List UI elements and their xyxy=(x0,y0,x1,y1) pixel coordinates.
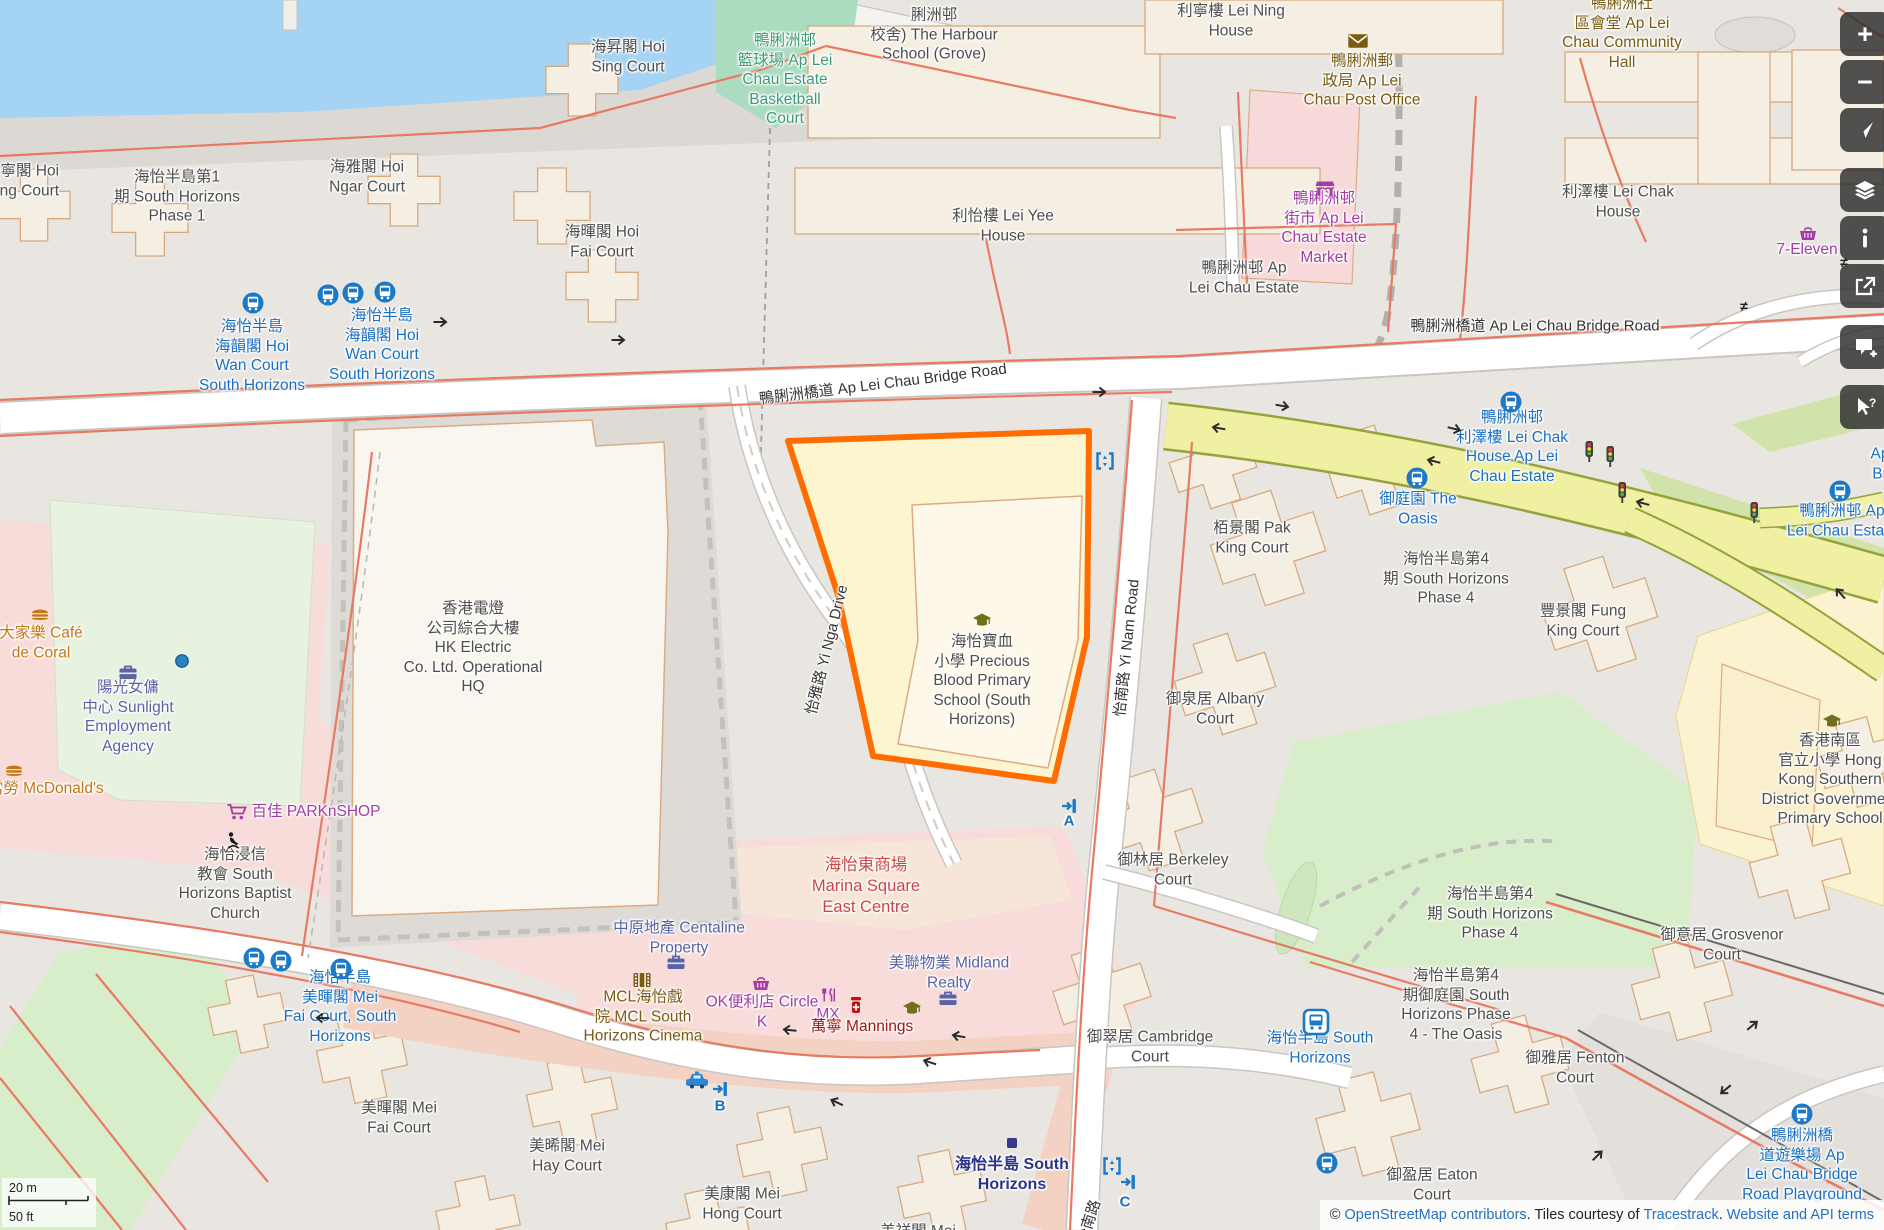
traffic-signal-icon xyxy=(1749,501,1760,525)
one-way-arrow-icon xyxy=(949,1029,968,1044)
attribution-link[interactable]: Tracestrack xyxy=(1644,1207,1719,1223)
convenience-store-icon xyxy=(1798,225,1818,242)
attribution-link[interactable]: Website and API terms xyxy=(1727,1207,1874,1223)
attribution-text: © xyxy=(1330,1207,1345,1223)
scale-metric: 20 m xyxy=(6,1181,92,1195)
zoom-out-button[interactable]: − xyxy=(1840,60,1884,104)
traffic-signal-icon xyxy=(1584,440,1595,464)
one-way-arrow-icon xyxy=(1274,399,1293,414)
one-way-arrow-icon xyxy=(1715,1080,1736,1100)
one-way-arrow-icon xyxy=(780,1023,798,1037)
map-markers-layer: ≠≠ xyxy=(0,0,1884,1230)
attribution-text: . Tiles courtesy of xyxy=(1527,1207,1644,1223)
one-way-arrow-icon xyxy=(1445,421,1464,437)
bus-stop-icon xyxy=(330,958,352,980)
school-icon xyxy=(902,1000,922,1016)
fast-food-icon xyxy=(31,607,50,621)
convenience-store-icon xyxy=(751,975,771,992)
bus-stop-icon xyxy=(1791,1103,1813,1125)
bus-stop-icon xyxy=(270,950,292,972)
one-way-arrow-icon xyxy=(1743,1015,1764,1035)
subway-entrance-icon xyxy=(1060,798,1078,814)
poi-dot xyxy=(175,654,190,669)
post-office-icon xyxy=(1348,34,1369,49)
traffic-signal-icon xyxy=(1617,481,1628,505)
bus-stop-icon xyxy=(243,947,265,969)
restaurant-icon xyxy=(821,987,838,1003)
one-way-arrow-icon xyxy=(433,316,450,328)
supermarket-icon xyxy=(227,803,248,821)
bus-stop-icon xyxy=(1316,1152,1338,1174)
fast-food-icon xyxy=(5,763,24,777)
school-icon xyxy=(972,612,992,628)
bus-stop-icon xyxy=(317,284,339,306)
bus-stop-icon xyxy=(374,281,396,303)
map-viewport: 海寧閣 Hoi Ning Court海怡半島第1 期 South Horizon… xyxy=(0,0,1884,1230)
locate-button[interactable] xyxy=(1840,108,1884,152)
one-way-arrow-icon xyxy=(1092,386,1109,398)
subway-entrance-icon xyxy=(1119,1174,1137,1190)
taxi-stand-icon xyxy=(684,1070,710,1090)
one-way-arrow-icon xyxy=(611,334,628,346)
elevator-icon xyxy=(1102,1157,1122,1175)
bus-station-icon xyxy=(1303,1009,1330,1036)
traffic-signal-icon xyxy=(1605,445,1616,469)
svg-text:?: ? xyxy=(1869,396,1876,410)
no-entry-icon: ≠ xyxy=(1740,299,1748,313)
office-icon xyxy=(118,664,138,681)
scale-bar: 20 m 50 ft xyxy=(2,1178,96,1227)
pharmacy-icon xyxy=(848,996,864,1015)
office-icon xyxy=(938,990,958,1007)
add-note-button[interactable] xyxy=(1840,325,1884,369)
subway-entrance-icon xyxy=(711,1081,729,1097)
cinema-icon xyxy=(633,972,652,988)
marketplace-icon xyxy=(1314,180,1336,198)
info-button[interactable] xyxy=(1840,216,1884,260)
query-features-button[interactable]: ? xyxy=(1840,385,1884,429)
place-of-worship-icon xyxy=(226,832,240,849)
zoom-in-button[interactable]: + xyxy=(1840,12,1884,56)
map-toolbar: +−? xyxy=(1832,0,1884,1230)
one-way-arrow-icon xyxy=(313,1012,330,1025)
share-button[interactable] xyxy=(1840,264,1884,308)
one-way-arrow-icon xyxy=(1632,495,1652,511)
attribution-text: . xyxy=(1719,1207,1727,1223)
scale-imperial: 50 ft xyxy=(6,1210,92,1224)
bus-stop-icon xyxy=(242,292,264,314)
one-way-arrow-icon xyxy=(826,1093,846,1111)
station-marker xyxy=(1007,1138,1017,1148)
one-way-arrow-icon xyxy=(1209,421,1228,436)
scale-bar-lines xyxy=(6,1195,92,1207)
one-way-arrow-icon xyxy=(919,1054,939,1071)
layers-button[interactable] xyxy=(1840,168,1884,212)
bus-stop-icon xyxy=(1500,391,1522,413)
one-way-arrow-icon xyxy=(1588,1145,1609,1166)
elevator-icon xyxy=(1095,452,1115,470)
attribution-link[interactable]: OpenStreetMap contributors xyxy=(1345,1207,1527,1223)
bus-stop-icon xyxy=(1406,467,1428,489)
office-icon xyxy=(666,954,686,971)
bus-stop-icon xyxy=(342,282,364,304)
attribution-bar: © OpenStreetMap contributors. Tiles cour… xyxy=(1320,1200,1884,1230)
